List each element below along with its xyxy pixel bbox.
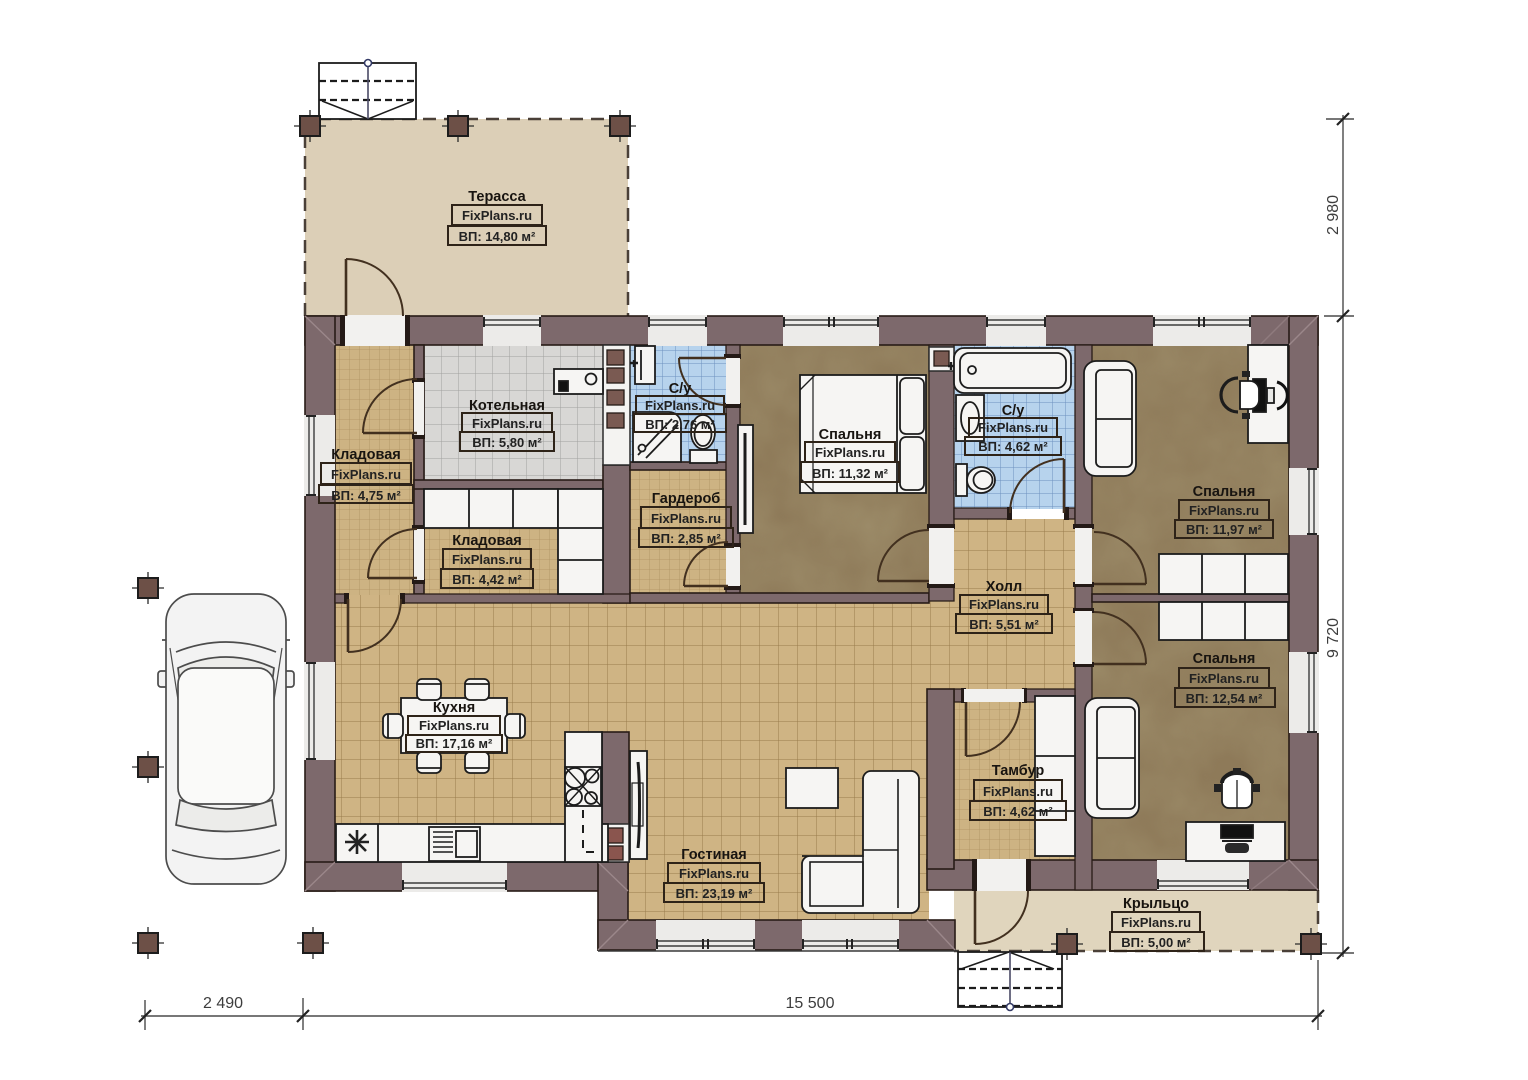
svg-text:ВП: 4,62 м²: ВП: 4,62 м²	[983, 804, 1053, 819]
svg-text:ВП: 2,85 м²: ВП: 2,85 м²	[651, 531, 721, 546]
svg-text:Кухня: Кухня	[433, 700, 475, 716]
svg-text:2 490: 2 490	[203, 995, 243, 1012]
svg-text:FixPlans.ru: FixPlans.ru	[419, 718, 489, 733]
svg-text:FixPlans.ru: FixPlans.ru	[462, 208, 532, 223]
svg-text:ВП: 4,42 м²: ВП: 4,42 м²	[452, 572, 522, 587]
svg-text:ВП: 11,97 м²: ВП: 11,97 м²	[1186, 522, 1263, 537]
svg-text:FixPlans.ru: FixPlans.ru	[983, 784, 1053, 799]
svg-text:9 720: 9 720	[1325, 618, 1342, 658]
svg-text:С/у: С/у	[669, 381, 692, 397]
svg-text:ВП: 4,75 м²: ВП: 4,75 м²	[331, 488, 401, 503]
svg-text:Спальня: Спальня	[1193, 651, 1256, 667]
svg-text:Гардероб: Гардероб	[652, 491, 721, 507]
svg-text:ВП: 5,51 м²: ВП: 5,51 м²	[969, 617, 1039, 632]
svg-text:Крыльцо: Крыльцо	[1123, 896, 1189, 912]
svg-text:FixPlans.ru: FixPlans.ru	[815, 445, 885, 460]
svg-text:FixPlans.ru: FixPlans.ru	[978, 420, 1048, 435]
svg-text:С/у: С/у	[1002, 403, 1025, 419]
svg-text:ВП: 11,32 м²: ВП: 11,32 м²	[812, 466, 889, 481]
svg-text:Холл: Холл	[986, 579, 1022, 595]
svg-text:FixPlans.ru: FixPlans.ru	[452, 552, 522, 567]
svg-text:ВП: 14,80 м²: ВП: 14,80 м²	[459, 229, 536, 244]
svg-text:Кладовая: Кладовая	[331, 447, 400, 463]
svg-text:Гостиная: Гостиная	[681, 847, 747, 863]
svg-text:ВП: 12,54 м²: ВП: 12,54 м²	[1186, 691, 1263, 706]
svg-text:FixPlans.ru: FixPlans.ru	[651, 511, 721, 526]
svg-text:ВП: 2,76 м²: ВП: 2,76 м²	[645, 417, 715, 432]
svg-text:ВП: 5,00 м²: ВП: 5,00 м²	[1121, 935, 1191, 950]
svg-text:Тамбур: Тамбур	[992, 763, 1045, 779]
svg-text:FixPlans.ru: FixPlans.ru	[645, 398, 715, 413]
svg-text:ВП: 5,80 м²: ВП: 5,80 м²	[472, 435, 542, 450]
svg-text:FixPlans.ru: FixPlans.ru	[969, 597, 1039, 612]
svg-text:Спальня: Спальня	[1193, 484, 1256, 500]
svg-text:Кладовая: Кладовая	[452, 533, 521, 549]
svg-text:FixPlans.ru: FixPlans.ru	[1189, 671, 1259, 686]
svg-text:ВП: 4,62 м²: ВП: 4,62 м²	[978, 439, 1048, 454]
svg-text:FixPlans.ru: FixPlans.ru	[472, 416, 542, 431]
svg-text:Котельная: Котельная	[469, 398, 545, 414]
svg-text:15 500: 15 500	[786, 995, 835, 1012]
svg-text:ВП: 17,16 м²: ВП: 17,16 м²	[416, 736, 493, 751]
svg-text:FixPlans.ru: FixPlans.ru	[331, 467, 401, 482]
svg-text:ВП: 23,19 м²: ВП: 23,19 м²	[676, 886, 753, 901]
svg-text:Терасса: Терасса	[468, 189, 526, 205]
svg-text:FixPlans.ru: FixPlans.ru	[1121, 915, 1191, 930]
svg-text:FixPlans.ru: FixPlans.ru	[1189, 503, 1259, 518]
svg-text:2 980: 2 980	[1325, 195, 1342, 235]
svg-text:FixPlans.ru: FixPlans.ru	[679, 866, 749, 881]
svg-text:Спальня: Спальня	[819, 427, 882, 443]
